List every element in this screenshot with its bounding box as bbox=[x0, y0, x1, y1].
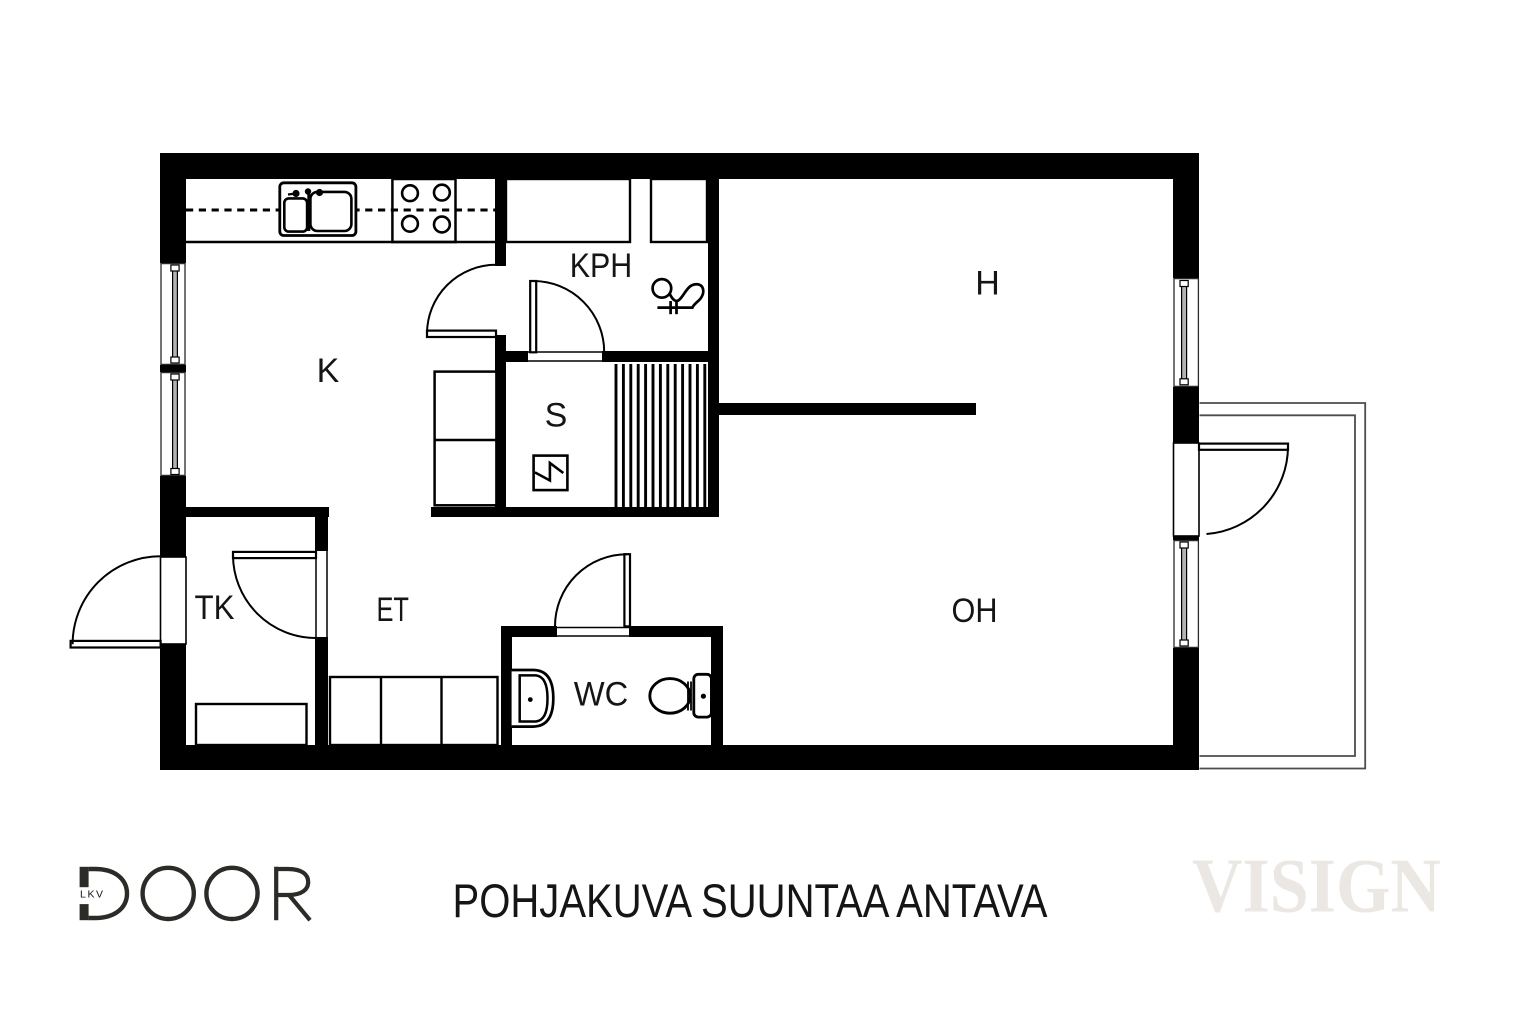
svg-text:KPH: KPH bbox=[570, 247, 633, 285]
svg-text:LKV: LKV bbox=[80, 889, 105, 901]
svg-text:WC: WC bbox=[574, 676, 629, 714]
svg-text:VISIGN: VISIGN bbox=[1192, 843, 1441, 929]
svg-text:OH: OH bbox=[952, 592, 998, 630]
svg-text:H: H bbox=[975, 265, 1000, 303]
svg-text:TK: TK bbox=[195, 589, 235, 627]
svg-text:S: S bbox=[545, 397, 568, 435]
svg-text:ET: ET bbox=[376, 591, 409, 629]
svg-text:K: K bbox=[317, 352, 340, 390]
svg-text:POHJAKUVA SUUNTAA ANTAVA: POHJAKUVA SUUNTAA ANTAVA bbox=[453, 874, 1049, 927]
